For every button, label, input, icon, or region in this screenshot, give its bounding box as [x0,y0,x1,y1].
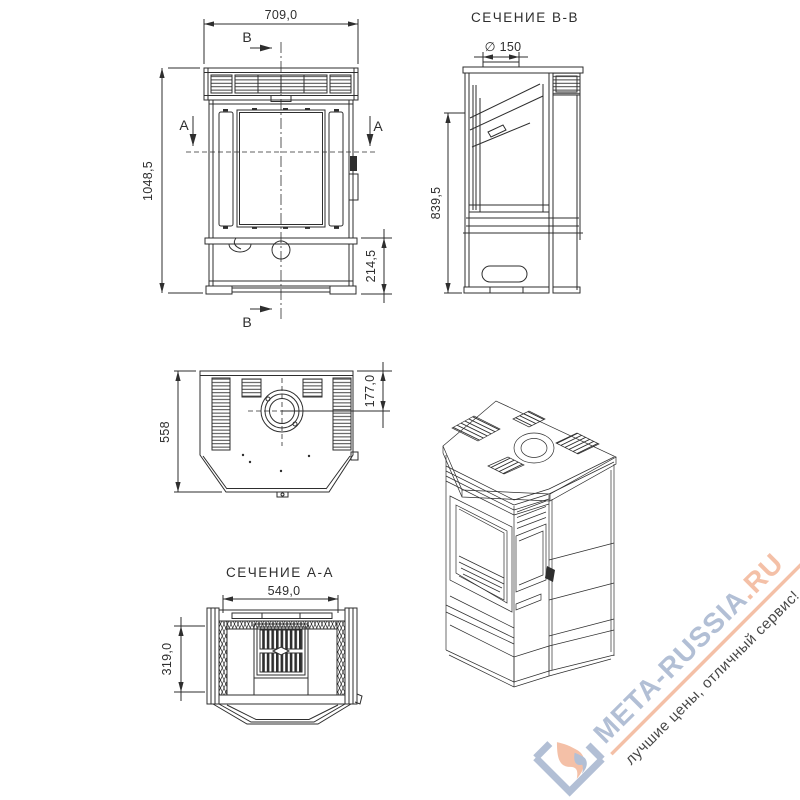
section-bb-height-dim: 839,5 [429,187,443,220]
door-handle [350,156,357,171]
top-depth-dim: 558 [158,421,172,443]
drawing-canvas: 709,0 1048,5 214,5 B B A A [0,0,800,800]
drawing-sheet: 709,0 1048,5 214,5 B B A A [0,0,800,800]
flue-offset-dim: 177,0 [363,375,377,408]
cut-label-b-top: B [242,29,251,45]
front-base-dim: 214,5 [364,250,378,283]
section-aa-title: СЕЧЕНИЕ А-А [226,565,334,580]
front-height-dim: 1048,5 [141,161,155,201]
front-width-dim: 709,0 [265,8,298,22]
cut-label-a-right: A [373,118,383,134]
flue-diameter-dim: ∅ 150 [485,40,522,54]
section-bb-title: СЕЧЕНИЕ В-В [471,10,579,25]
section-aa-width-dim: 549,0 [268,584,301,598]
cut-label-a-left: A [179,117,189,133]
cut-label-b-bottom: B [242,314,251,330]
section-aa-depth-dim: 319,0 [160,643,174,676]
sheet-background [0,0,800,800]
